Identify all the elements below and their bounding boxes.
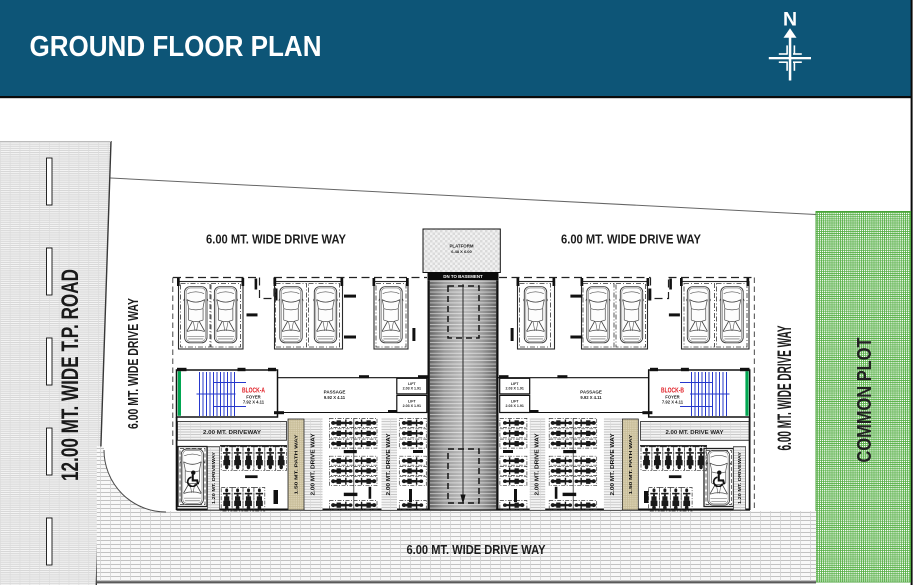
- svg-text:6.00 MT. WIDE DRIVE WAY: 6.00 MT. WIDE DRIVE WAY: [775, 325, 796, 450]
- svg-text:1.20 MT. DRIVEWAY: 1.20 MT. DRIVEWAY: [211, 452, 216, 504]
- svg-text:2.03 X 1.91: 2.03 X 1.91: [403, 404, 421, 408]
- svg-text:PASSAGE: PASSAGE: [580, 390, 602, 395]
- svg-text:6.00 MT. WIDE DRIVE WAY: 6.00 MT. WIDE DRIVE WAY: [125, 298, 142, 429]
- svg-text:BLOCK-A: BLOCK-A: [242, 388, 265, 395]
- svg-text:PASSAGE: PASSAGE: [324, 390, 346, 395]
- svg-text:2.00 MT. DRIVE WAY: 2.00 MT. DRIVE WAY: [610, 433, 616, 496]
- svg-text:2.00 MT. DRIVE WAY: 2.00 MT. DRIVE WAY: [534, 433, 540, 496]
- svg-text:6.00 MT. WIDE DRIVE WAY: 6.00 MT. WIDE DRIVE WAY: [206, 231, 346, 246]
- svg-text:2.03 X 1.91: 2.03 X 1.91: [506, 387, 524, 391]
- svg-text:LIFT: LIFT: [408, 382, 416, 386]
- svg-text:9.92 X 4.11: 9.92 X 4.11: [580, 395, 602, 400]
- svg-text:12.00 MT. WIDE T.P. ROAD: 12.00 MT. WIDE T.P. ROAD: [57, 269, 84, 481]
- svg-text:1.50 MT. PATH WAY: 1.50 MT. PATH WAY: [294, 435, 299, 495]
- svg-text:2.00 MT. DRIVE WAY: 2.00 MT. DRIVE WAY: [311, 433, 317, 496]
- svg-text:7.92 X 4.11: 7.92 X 4.11: [662, 399, 684, 404]
- svg-text:2.00 MT. DRIVE WAY: 2.00 MT. DRIVE WAY: [386, 433, 392, 496]
- svg-text:DN TO BASEMENT: DN TO BASEMENT: [443, 274, 483, 279]
- svg-text:BLOCK-B: BLOCK-B: [661, 388, 684, 395]
- svg-text:GROUND FLOOR PLAN: GROUND FLOOR PLAN: [30, 31, 322, 63]
- svg-text:1.20 MT. DRIVEWAY: 1.20 MT. DRIVEWAY: [737, 452, 742, 504]
- svg-text:9.92 X 4.11: 9.92 X 4.11: [324, 395, 346, 400]
- svg-text:2.03 X 1.91: 2.03 X 1.91: [403, 387, 421, 391]
- svg-text:N: N: [783, 9, 797, 31]
- svg-text:7.92 X 4.11: 7.92 X 4.11: [243, 399, 265, 404]
- svg-text:6.00 MT. WIDE DRIVE WAY: 6.00 MT. WIDE DRIVE WAY: [407, 543, 547, 557]
- svg-text:6.00 MT. WIDE DRIVE WAY: 6.00 MT. WIDE DRIVE WAY: [561, 231, 701, 246]
- svg-text:2.00 MT. DRIVE WAY: 2.00 MT. DRIVE WAY: [666, 430, 724, 436]
- svg-text:LIFT: LIFT: [408, 400, 416, 404]
- svg-text:2.00 MT. DRIVEWAY: 2.00 MT. DRIVEWAY: [203, 430, 261, 436]
- svg-text:COMMON PLOT: COMMON PLOT: [853, 337, 876, 462]
- svg-text:LIFT: LIFT: [511, 382, 519, 386]
- svg-text:1.50 MT. PATH WAY: 1.50 MT. PATH WAY: [628, 435, 633, 495]
- svg-text:LIFT: LIFT: [511, 400, 519, 404]
- svg-text:PLATFORM: PLATFORM: [449, 244, 473, 249]
- svg-text:6.48 X 6.00: 6.48 X 6.00: [451, 249, 472, 254]
- svg-text:2.03 X 1.91: 2.03 X 1.91: [506, 404, 524, 408]
